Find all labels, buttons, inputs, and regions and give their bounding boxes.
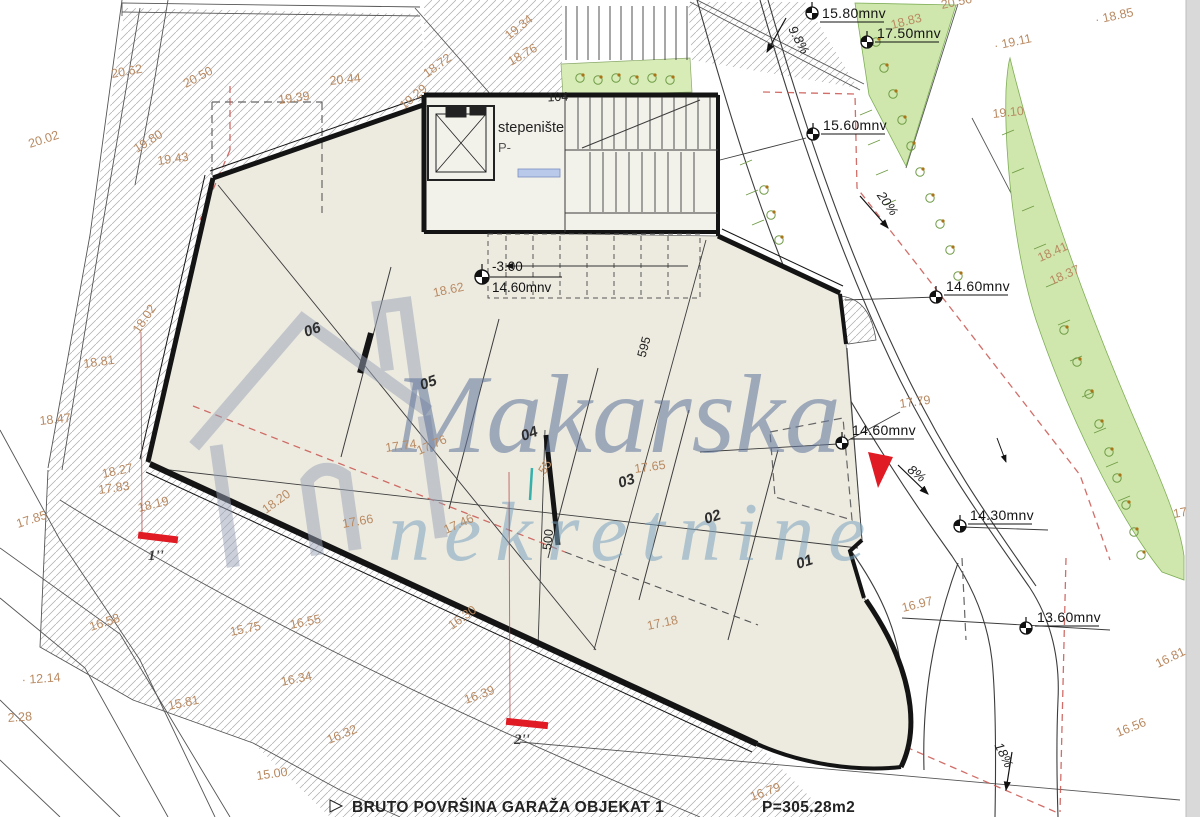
plant-icon: [936, 219, 945, 228]
stairwell-line1: stepenište: [498, 120, 564, 136]
benchmark-elevation-label: 14.30mnv: [970, 507, 1034, 523]
caption-area-value: P=305.28m2: [762, 799, 855, 816]
section-number-label: 2'': [513, 732, 530, 748]
level-absolute: 14.60mnv: [492, 280, 552, 295]
spot-elevation-label: · 18.85: [1094, 5, 1135, 27]
benchmark-elevation-label: 13.60mnv: [1037, 609, 1101, 625]
bottom-caption: BRUTO POVRŠINA GARAŽA OBJEKAT 1 P=305.28…: [330, 798, 855, 816]
benchmark-icon: [930, 286, 942, 303]
spot-elevation-label: 16.97: [900, 594, 934, 615]
door-element: [518, 169, 560, 177]
site-plan-screenshot: Makarska nekretnine 20.0220.6220.5020.44…: [0, 0, 1200, 817]
plant-icon: [1137, 550, 1146, 559]
benchmark-icon: [954, 515, 966, 532]
slope-percent-label: 8%: [905, 462, 929, 485]
dimension-label: 500: [540, 528, 556, 550]
spot-elevation-label: 17.79: [898, 393, 931, 411]
plant-icon: [767, 210, 776, 219]
slope-annotation: 20%: [860, 188, 901, 228]
spot-elevation-label: · 12.14: [21, 670, 61, 687]
spot-elevation-label: 20.02: [27, 128, 61, 151]
benchmark-marker: 15.80mnv: [806, 2, 886, 22]
benchmark-marker: 14.60mnv: [930, 278, 1010, 303]
section-number-label: 1'': [148, 548, 164, 564]
viewer-edge: [1186, 0, 1200, 817]
spot-elevation-label: 16.56: [1114, 715, 1148, 740]
benchmark-marker: 13.60mnv: [1020, 609, 1101, 634]
dimension-label: 104: [547, 89, 569, 104]
spot-elevation-label: 16.81: [1153, 644, 1187, 670]
benchmark-icon: [806, 2, 818, 19]
misc-markers: [868, 438, 1006, 488]
plant-icon: [916, 167, 925, 176]
benchmark-elevation-label: 14.60mnv: [852, 422, 916, 438]
plant-icon: [946, 245, 955, 254]
spot-elevation-label: 2.28: [7, 709, 32, 725]
stairwell-line2: P-: [498, 140, 511, 155]
plant-icon: [775, 235, 784, 244]
benchmark-icon: [1020, 617, 1032, 634]
spot-elevation-label: 15.00: [255, 765, 288, 783]
plant-icon: [760, 185, 769, 194]
benchmark-elevation-label: 15.80mnv: [822, 5, 886, 21]
benchmark-elevation-label: 15.60mnv: [823, 117, 887, 133]
spot-elevation-label: 17.85: [15, 508, 49, 531]
slope-annotation: 8%: [898, 462, 929, 494]
benchmark-elevation-label: 14.60mnv: [946, 278, 1010, 294]
watermark-line1: Makarska: [391, 353, 841, 477]
spot-elevation-label: · 19.11: [993, 31, 1033, 53]
red-triangle-marker: [868, 452, 893, 488]
level-relative: -3.00: [492, 259, 523, 274]
plant-icon: [926, 193, 935, 202]
caption-text: BRUTO POVRŠINA GARAŽA OBJEKAT 1: [352, 798, 664, 816]
benchmark-icon: [807, 123, 819, 140]
flow-arrow-icon: [997, 438, 1006, 462]
drawing-canvas: Makarska nekretnine 20.0220.6220.5020.44…: [0, 0, 1200, 817]
benchmark-marker: 15.60mnv: [807, 117, 887, 140]
benchmark-elevation-label: 17.50mnv: [877, 25, 941, 41]
